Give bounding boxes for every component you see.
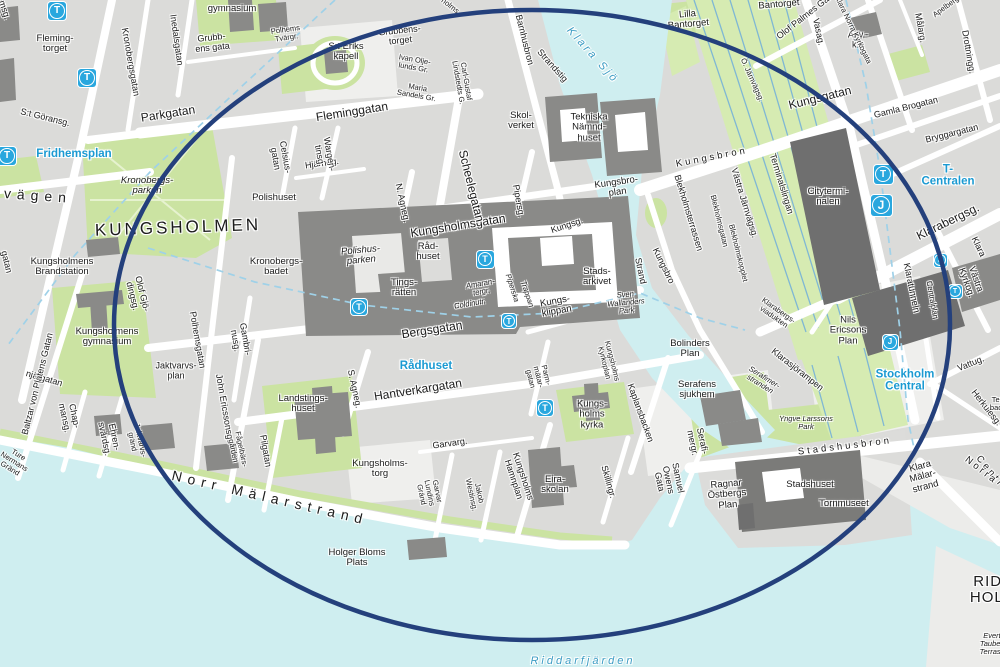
tingsratten-building	[378, 272, 412, 306]
kapell-building	[324, 50, 348, 74]
map-viewport[interactable]: Fridhemsg.KronobergsgatanInedalsgatangym…	[0, 0, 1000, 667]
brandstation-building	[86, 237, 120, 257]
kronobergsparken-area	[82, 126, 232, 258]
base-map	[0, 0, 1000, 667]
stadshuset-tower	[737, 503, 755, 530]
serafen-building	[700, 390, 746, 426]
